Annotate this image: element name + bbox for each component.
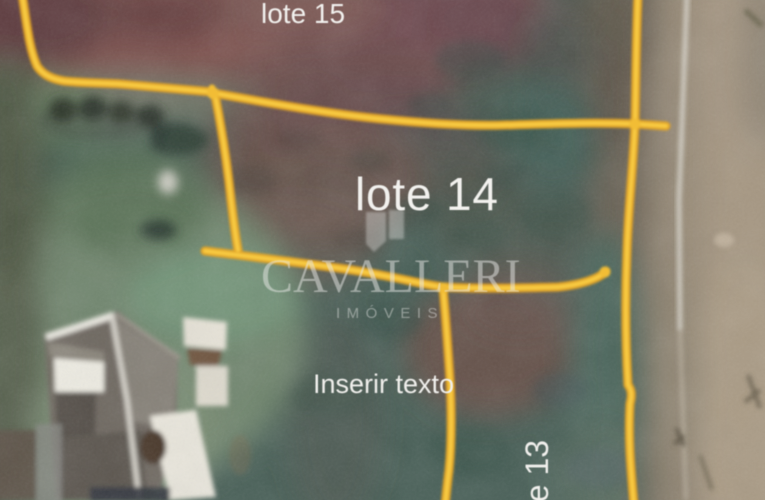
svg-text:Inserir texto: Inserir texto [313, 369, 454, 399]
svg-text:lote 14: lote 14 [355, 168, 499, 220]
svg-text:IMÓVEIS: IMÓVEIS [336, 305, 444, 322]
svg-text:lote 15: lote 15 [261, 0, 345, 29]
svg-text:CAVALLERI: CAVALLERI [261, 250, 521, 303]
svg-text:lote 13: lote 13 [519, 440, 555, 500]
